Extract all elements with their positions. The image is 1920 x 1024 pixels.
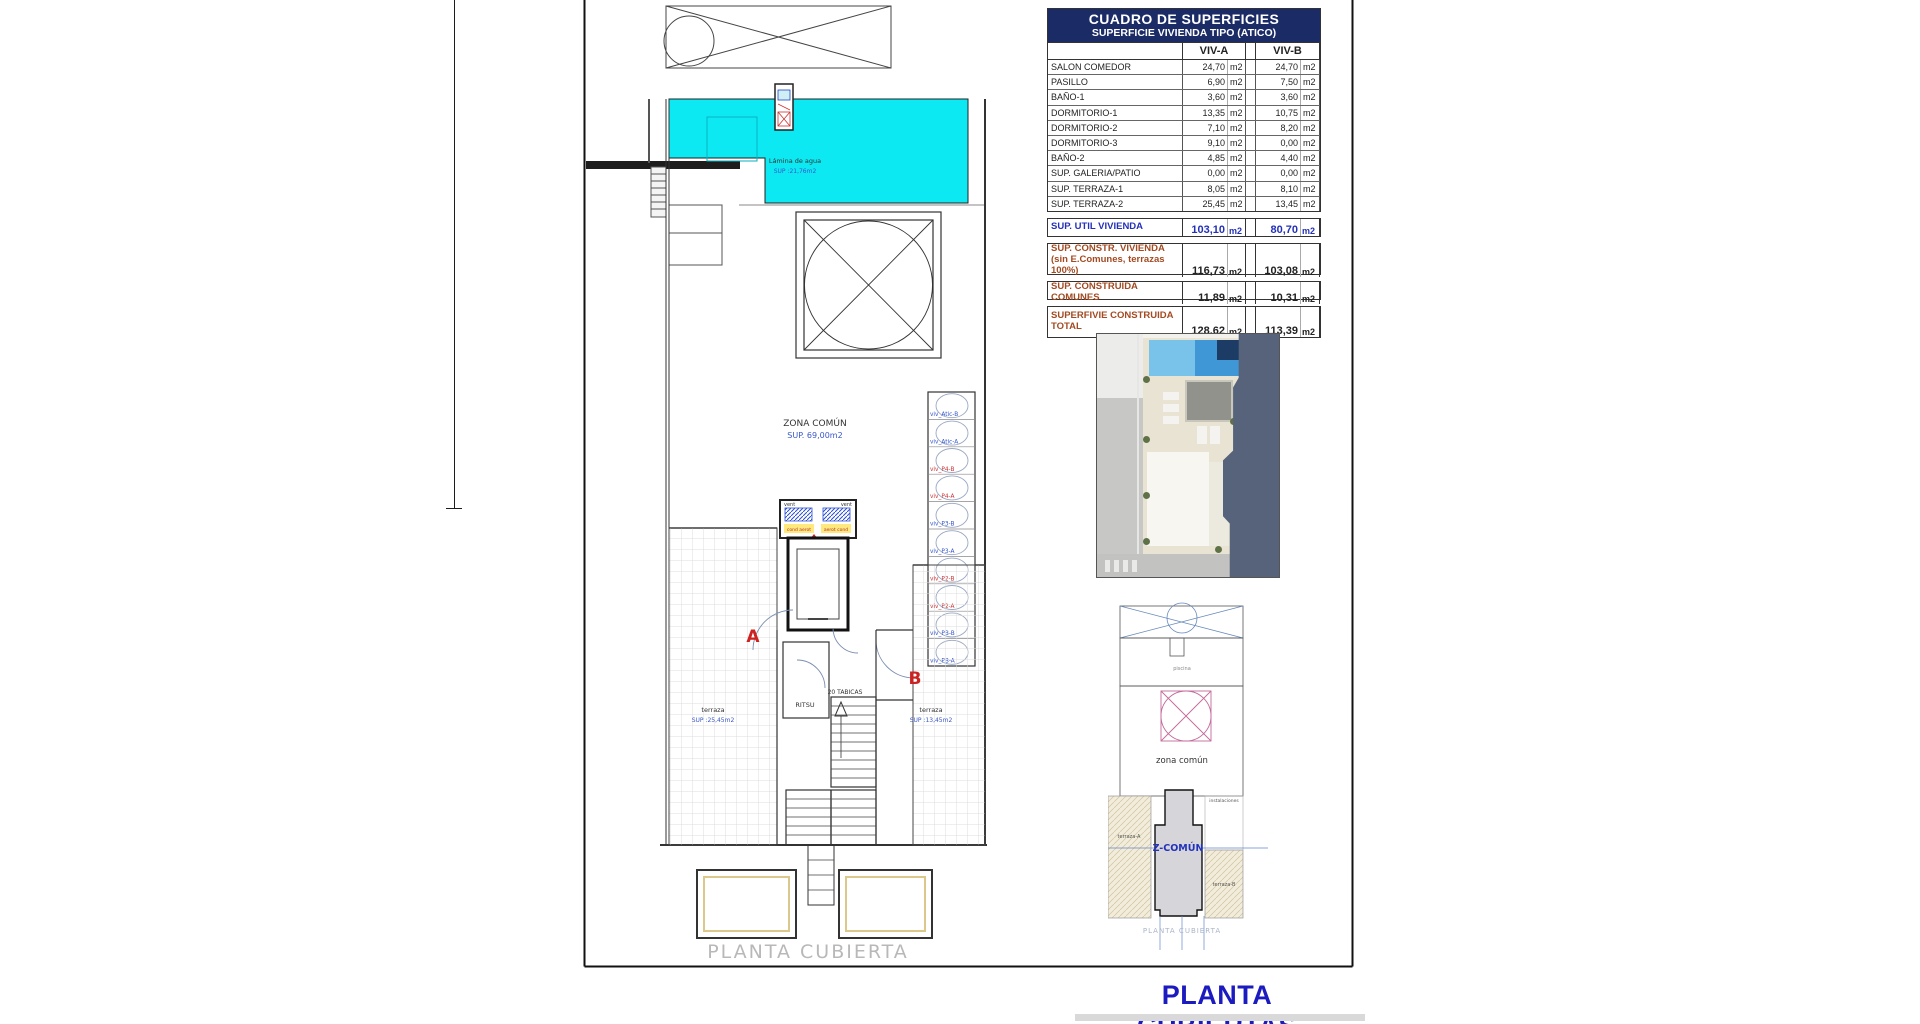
summary-name-2: TOTAL — [1051, 322, 1182, 333]
unit-label: m2 — [1227, 151, 1246, 165]
summary-name-2: (sin E.Comunes, terrazas 100%) — [1051, 255, 1182, 277]
elevator-shaft — [788, 538, 848, 630]
unit-label: m2 — [1227, 90, 1246, 104]
unit-label: m2 — [1227, 244, 1246, 277]
col-viv-b: VIV-B — [1255, 43, 1320, 59]
viv-b-value: 103,08 — [1255, 244, 1300, 277]
table-row: SUP. TERRAZA-225,45m213,45m2 — [1048, 197, 1320, 211]
table-row: SUP. TERRAZA-18,05m28,10m2 — [1048, 182, 1320, 197]
viv-a-value: 11,89 — [1182, 282, 1227, 304]
summary-row-util: SUP. UTIL VIVIENDA 103,10 m2 80,70 m2 — [1047, 218, 1321, 237]
unit-label: m2 — [1227, 136, 1246, 150]
viv-a-value: 0,00 — [1182, 166, 1227, 180]
drawing-sheet-page: Lámina de agua SUP :21,76m2 — [0, 0, 1920, 1024]
viv-b-value: 24,70 — [1255, 60, 1300, 74]
summary-row-constr: SUP. CONSTR. VIVIENDA(sin E.Comunes, ter… — [1047, 243, 1321, 275]
unit-label: m2 — [1300, 282, 1320, 304]
summary-name: SUP. CONSTRUIDA COMUNES — [1051, 282, 1182, 304]
unit-label: m2 — [1300, 197, 1320, 211]
site-terraza-a-label: terraza-A — [1118, 834, 1142, 840]
unit-label: m2 — [1227, 121, 1246, 135]
chimney — [775, 84, 793, 130]
terraza-right — [913, 565, 985, 845]
zona-comun-area: SUP. 69,00m2 — [787, 431, 842, 440]
summary-row-comunes: SUP. CONSTRUIDA COMUNES 11,89 m2 10,31 m… — [1047, 281, 1321, 300]
viv-b-value: 3,60 — [1255, 90, 1300, 104]
terraza-left-label: terraza — [701, 706, 724, 714]
table-row: DORMITORIO-39,10m20,00m2 — [1048, 136, 1320, 151]
row-name: DORMITORIO-2 — [1048, 121, 1182, 135]
table-subtitle: SUPERFICIE VIVIENDA TIPO (ATICO) — [1048, 27, 1320, 39]
row-name: SUP. GALERIA/PATIO — [1048, 166, 1182, 180]
render-stair-core — [1147, 452, 1209, 546]
terraza-right-area: SUP :13,45m2 — [910, 717, 953, 724]
row-name: DORMITORIO-3 — [1048, 136, 1182, 150]
unit-label: m2 — [1227, 282, 1246, 304]
row-name: SUP. TERRAZA-1 — [1048, 182, 1182, 196]
unit-label: m2 — [1227, 182, 1246, 196]
viv-a-value: 25,45 — [1182, 197, 1227, 211]
unit-label: m2 — [1227, 166, 1246, 180]
stairs: 20 TABICAS — [786, 689, 876, 845]
viv-b-value: 13,45 — [1255, 197, 1300, 211]
pool — [669, 99, 968, 203]
viv-a-value: 13,35 — [1182, 106, 1227, 120]
frame-edge-line — [454, 0, 455, 508]
letter-b: B — [909, 669, 922, 689]
site-z-comun-label: Z-COMÚN — [1153, 842, 1204, 854]
unit-label: m2 — [1300, 60, 1320, 74]
viv-a-value: 3,60 — [1182, 90, 1227, 104]
unit-label: m2 — [1227, 197, 1246, 211]
unit-label: viv_P4-A — [930, 494, 955, 500]
unit-label: m2 — [1300, 151, 1320, 165]
aerot-left-label: cond aerot — [787, 527, 811, 533]
site-terraza-b-label: terraza-B — [1213, 882, 1236, 888]
unit-label: viv_P3-A — [930, 549, 955, 555]
roof-skylight-top — [664, 6, 891, 68]
unit-label: m2 — [1227, 219, 1246, 236]
viv-a-value: 24,70 — [1182, 60, 1227, 74]
table-header: CUADRO DE SUPERFICIES SUPERFICIE VIVIEND… — [1048, 9, 1320, 43]
site-zona-comun-label: zona común — [1156, 756, 1208, 766]
unit-label: m2 — [1227, 60, 1246, 74]
viv-b-value: 0,00 — [1255, 166, 1300, 180]
summary-name: SUP. UTIL VIVIENDA — [1051, 222, 1182, 233]
balconies — [697, 845, 932, 938]
table-row: DORMITORIO-113,35m210,75m2 — [1048, 106, 1320, 121]
unit-label: m2 — [1300, 182, 1320, 196]
viv-a-value: 7,10 — [1182, 121, 1227, 135]
unit-label: m2 — [1300, 307, 1320, 337]
unit-label: viv_Atic-B — [930, 412, 958, 418]
table-row: DORMITORIO-27,10m28,20m2 — [1048, 121, 1320, 136]
unit-label: viv_Atic-A — [930, 439, 958, 445]
site-instalaciones-label: instalaciones — [1209, 798, 1239, 804]
site-key-plan: piscina zona común Z-COMÚN terraza-A ter… — [1108, 598, 1268, 963]
ritsu-label: RITSU — [795, 701, 815, 709]
row-name: SUP. TERRAZA-2 — [1048, 197, 1182, 211]
viv-b-value: 10,31 — [1255, 282, 1300, 304]
zona-comun-label: ZONA COMÚN — [783, 417, 846, 429]
table-row: SUP. GALERIA/PATIO0,00m20,00m2 — [1048, 166, 1320, 181]
unit-label: m2 — [1300, 166, 1320, 180]
row-name: BAÑO-2 — [1048, 151, 1182, 165]
site-zona-comun: zona común — [1120, 686, 1243, 796]
viv-a-value: 4,85 — [1182, 151, 1227, 165]
machine-room: vent vent cond aerot aerot cond — [780, 500, 856, 539]
skylight — [796, 212, 941, 358]
unit-label: m2 — [1300, 75, 1320, 89]
unit-label: viv_P3-B — [930, 522, 954, 528]
ritsu-room: RITSU — [783, 642, 829, 718]
viv-b-value: 0,00 — [1255, 136, 1300, 150]
unit-label: m2 — [1227, 106, 1246, 120]
viv-b-value: 8,20 — [1255, 121, 1300, 135]
table-row: BAÑO-24,85m24,40m2 — [1048, 151, 1320, 166]
col-viv-a: VIV-A — [1182, 43, 1246, 59]
terraza-left — [669, 528, 777, 845]
unit-label: m2 — [1300, 244, 1320, 277]
table-row: SALON COMEDOR24,70m224,70m2 — [1048, 60, 1320, 75]
viv-a-value: 116,73 — [1182, 244, 1227, 277]
viv-a-value: 103,10 — [1182, 219, 1227, 236]
site-caption: PLANTA CUBIERTA — [1143, 927, 1221, 935]
tabicas-label: 20 TABICAS — [828, 689, 863, 696]
vent-left-label: vent — [784, 502, 795, 508]
row-name: SALON COMEDOR — [1048, 60, 1182, 74]
plan-caption: PLANTA CUBIERTA — [707, 941, 909, 963]
viv-b-value: 10,75 — [1255, 106, 1300, 120]
terraza-right-label: terraza — [919, 706, 942, 714]
unit-label: m2 — [1300, 121, 1320, 135]
vent-right-label: vent — [841, 502, 852, 508]
viv-b-value: 80,70 — [1255, 219, 1300, 236]
unit-label: m2 — [1227, 75, 1246, 89]
viv-a-value: 8,05 — [1182, 182, 1227, 196]
surfaces-table: CUADRO DE SUPERFICIES SUPERFICIE VIVIEND… — [1047, 8, 1321, 338]
aerot-right-label: aerot cond — [824, 527, 848, 533]
row-name: BAÑO-1 — [1048, 90, 1182, 104]
pool-area-label: SUP :21,76m2 — [774, 168, 817, 175]
unit-label: m2 — [1300, 90, 1320, 104]
row-name: PASILLO — [1048, 75, 1182, 89]
table-row: BAÑO-13,60m23,60m2 — [1048, 90, 1320, 105]
frame-edge-tick — [446, 508, 462, 509]
site-lower-zone: Z-COMÚN terraza-A terraza-B instalacione… — [1108, 790, 1268, 950]
render-skylight — [1185, 380, 1233, 422]
viv-b-value: 4,40 — [1255, 151, 1300, 165]
rooftop-3d-render — [1096, 333, 1280, 578]
row-name: DORMITORIO-1 — [1048, 106, 1182, 120]
viv-b-value: 8,10 — [1255, 182, 1300, 196]
title-underline-band — [1075, 1014, 1365, 1021]
viv-b-value: 7,50 — [1255, 75, 1300, 89]
site-piscina-label: piscina — [1173, 666, 1191, 672]
corridor-walls — [777, 630, 913, 845]
unit-label: m2 — [1300, 106, 1320, 120]
letter-a: A — [746, 627, 760, 647]
unit-label: viv_P4-B — [930, 467, 954, 473]
unit-label: m2 — [1300, 219, 1320, 236]
terraza-left-area: SUP :25,45m2 — [692, 717, 735, 724]
unit-label: m2 — [1300, 136, 1320, 150]
column-header-row: VIV-A VIV-B — [1048, 43, 1320, 60]
surfaces-table-main: CUADRO DE SUPERFICIES SUPERFICIE VIVIEND… — [1047, 8, 1321, 212]
pool-label: Lámina de agua — [769, 157, 821, 165]
site-roof-lines — [1120, 603, 1243, 638]
viv-a-value: 6,90 — [1182, 75, 1227, 89]
table-row: PASILLO6,90m27,50m2 — [1048, 75, 1320, 90]
table-title: CUADRO DE SUPERFICIES — [1048, 11, 1320, 27]
site-pool-zone — [1120, 638, 1243, 686]
viv-a-value: 9,10 — [1182, 136, 1227, 150]
